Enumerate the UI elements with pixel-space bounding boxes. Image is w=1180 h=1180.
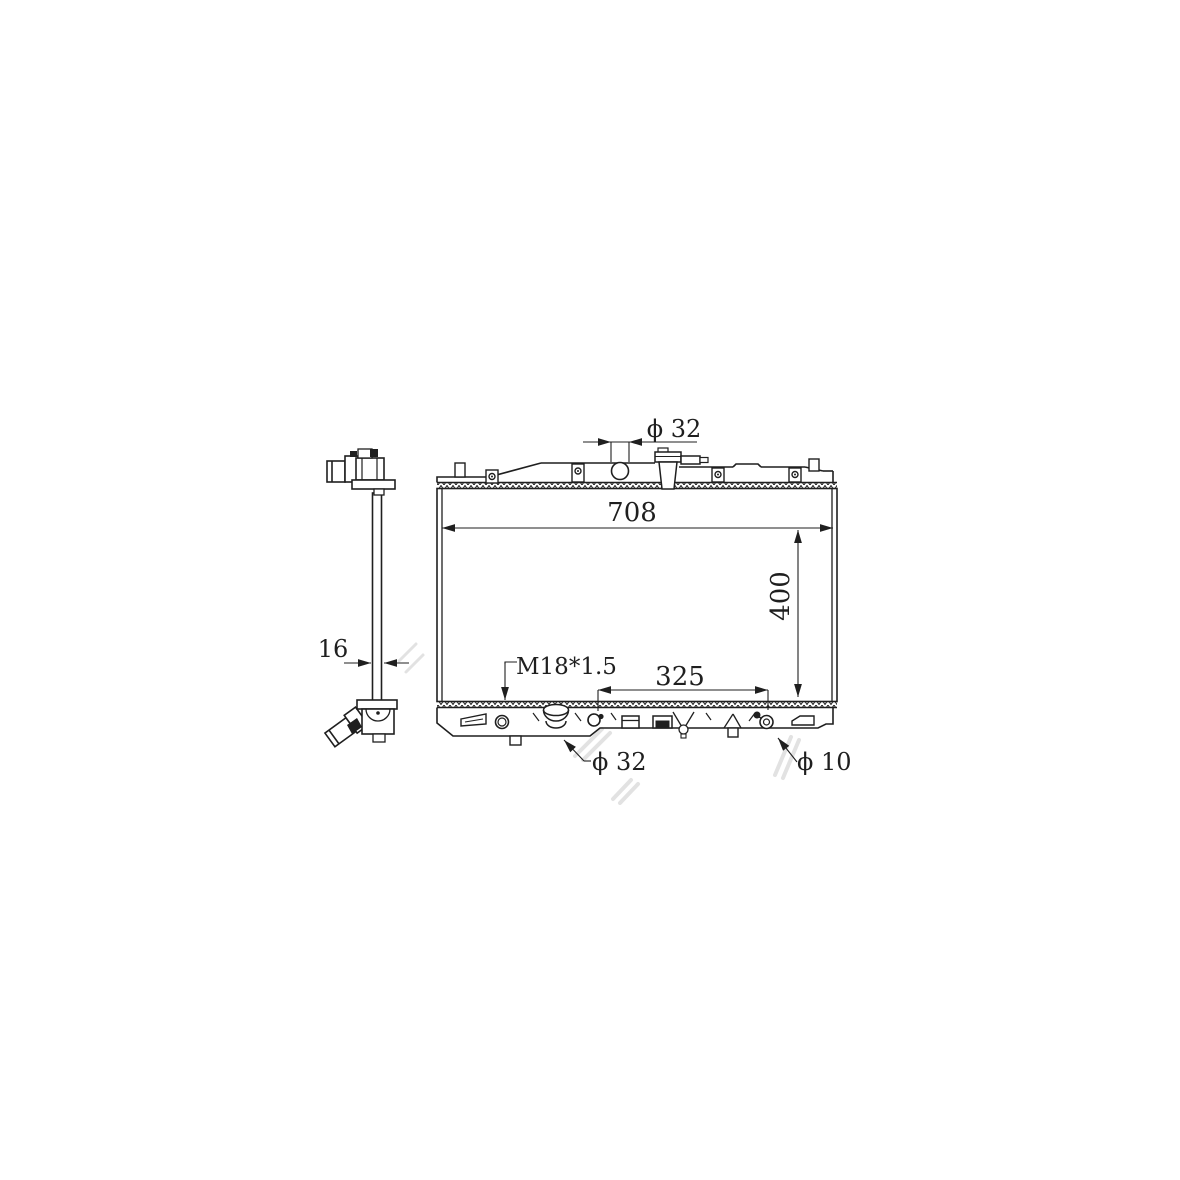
bracket <box>789 468 801 482</box>
top-peg-right <box>809 459 819 471</box>
dim-core-height-label: 400 <box>766 571 796 621</box>
drain-plug <box>496 716 509 729</box>
bracket <box>486 470 498 483</box>
side-view-core <box>373 493 382 702</box>
core-serration-bottom <box>437 702 837 707</box>
dim-small-fitting-label: ϕ 10 <box>797 748 852 776</box>
dim-drain-thread-label: M18*1.5 <box>516 654 617 680</box>
mount-slot-open <box>622 716 639 728</box>
dim-core-thickness-label: 16 <box>318 635 349 663</box>
dim-top-inlet-label: ϕ 32 <box>647 415 702 443</box>
top-peg-left <box>455 463 465 477</box>
bracket <box>712 468 724 482</box>
mount-slot-filled <box>653 716 672 728</box>
dim-core-width-label: 708 <box>607 498 657 528</box>
top-inlet-hole <box>612 463 629 480</box>
dim-outlet-label: ϕ 32 <box>592 748 647 776</box>
bracket <box>572 464 584 482</box>
radiator-diagram: ALTAY <box>0 0 1180 1180</box>
screenshot-canvas: ALTAY <box>0 0 1180 1180</box>
dim-lower-span-label: 325 <box>655 662 705 692</box>
core-serration-top <box>437 483 837 488</box>
bottom-peg-left <box>510 736 521 745</box>
